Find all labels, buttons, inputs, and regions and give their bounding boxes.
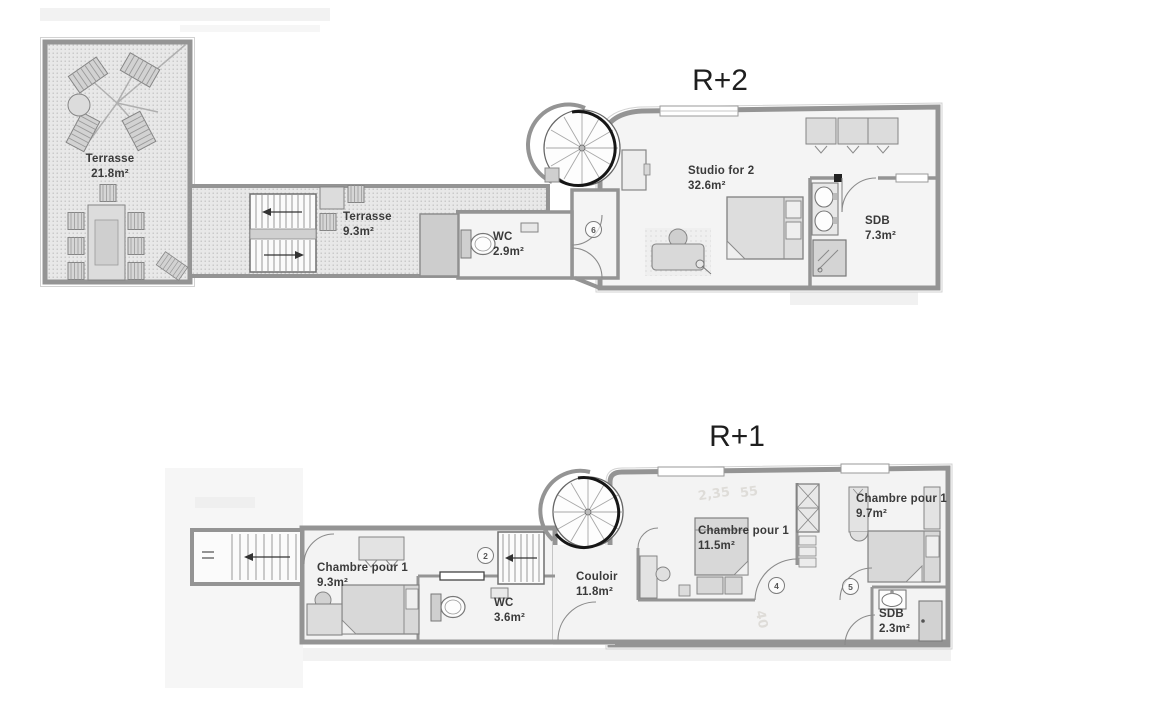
door-badge-2: 2	[477, 547, 494, 564]
plan-title-r1: R+1	[667, 420, 807, 454]
floorplan-page: R+2 R+1 Terrasse 21.8m² Terrasse 9.3m² W…	[0, 0, 1152, 720]
room-label-wc-r2: WC 2.9m²	[493, 230, 524, 260]
room-label-sdb-r2: SDB 7.3m²	[865, 214, 896, 244]
spiral-staircase-r2	[528, 104, 620, 186]
room-label-chambre-115: Chambre pour 1 11.5m²	[698, 524, 789, 554]
closet-x	[797, 484, 819, 567]
room-label-wc-r1: WC 3.6m²	[494, 596, 525, 626]
bed-93	[342, 585, 419, 634]
room-label-sdb-r1: SDB 2.3m²	[879, 607, 910, 637]
room-label-studio: Studio for 2 32.6m²	[688, 164, 754, 194]
room-label-couloir: Couloir 11.8m²	[576, 570, 618, 600]
r2-utility-block	[420, 214, 458, 276]
desk-area	[645, 228, 711, 276]
room-label-chambre-93: Chambre pour 1 9.3m²	[317, 561, 408, 591]
window	[660, 106, 738, 116]
door-badge-4: 4	[768, 577, 785, 594]
stairs-r1-small	[498, 532, 544, 584]
plan-title-r2: R+2	[650, 64, 790, 98]
room-label-chambre-97: Chambre pour 1 9.7m²	[856, 492, 947, 522]
room-label-terrasse-strip: Terrasse 9.3m²	[343, 210, 392, 240]
stairs-r2	[250, 194, 316, 272]
door-badge-6: 6	[585, 221, 602, 238]
plan-r2	[41, 38, 943, 293]
door-badge-5: 5	[842, 578, 859, 595]
shower	[813, 240, 846, 276]
plan-r1	[192, 464, 952, 649]
stairs-r1-left	[192, 530, 302, 584]
bed-studio	[727, 197, 803, 259]
double-sink	[812, 183, 838, 235]
studio-cupboard	[622, 150, 650, 190]
floorplan-canvas	[0, 0, 1152, 720]
room-label-terrasse-large: Terrasse 21.8m²	[58, 152, 162, 182]
pencil-annotation: 55	[739, 484, 759, 501]
